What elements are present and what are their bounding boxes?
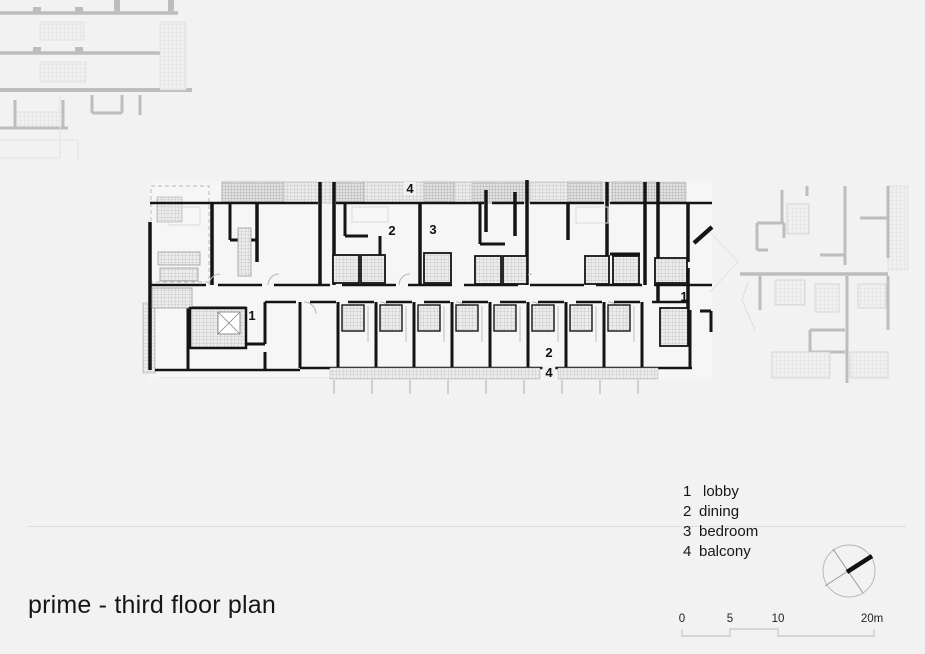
plan-room-label-dining-lower: 2 — [545, 346, 552, 359]
legend-label: balcony — [699, 542, 751, 562]
floor-plan-drawing — [0, 0, 925, 654]
legend-item-lobby: 1 lobby — [683, 482, 758, 502]
legend-item-dining: 2 dining — [683, 502, 758, 522]
room-legend: 1 lobby 2 dining 3 bedroom 4 balcony — [683, 482, 758, 562]
legend-label: lobby — [703, 482, 739, 502]
stair-core — [660, 308, 688, 346]
plan-room-label-bedroom-upper: 3 — [429, 223, 436, 236]
scale-tick-10: 10 — [772, 613, 785, 625]
plan-room-label-balcony-top: 4 — [403, 182, 416, 195]
north-arrow-needle — [847, 556, 872, 572]
main-floor-plan — [143, 180, 738, 394]
divider-line — [28, 526, 906, 527]
legend-number: 4 — [683, 542, 695, 562]
floor-plan-page: 4 2 3 1 1 2 4 1 lobby 2 dining 3 bedroom… — [0, 0, 925, 654]
scale-tick-5: 5 — [727, 613, 733, 625]
drawing-title: prime - third floor plan — [28, 591, 276, 620]
plan-room-label-dining-upper: 2 — [388, 224, 395, 237]
scale-tick-0: 0 — [679, 613, 685, 625]
balcony-band-bottom — [330, 368, 540, 379]
legend-label: bedroom — [699, 522, 758, 542]
plan-room-label-lobby-right: 1 — [680, 290, 687, 303]
legend-number: 2 — [683, 502, 695, 522]
legend-number: 3 — [683, 522, 695, 542]
legend-item-bedroom: 3 bedroom — [683, 522, 758, 542]
scale-bar — [682, 629, 874, 636]
scale-tick-20m: 20m — [861, 613, 883, 625]
plan-room-label-lobby-left: 1 — [248, 309, 255, 322]
north-arrow-compass — [823, 545, 875, 597]
legend-number: 1 — [683, 482, 695, 502]
plan-room-label-balcony-bottom: 4 — [542, 366, 555, 379]
adjacent-plan-right — [740, 186, 908, 383]
legend-item-balcony: 4 balcony — [683, 542, 758, 562]
adjacent-plan-top-left — [0, 0, 192, 160]
legend-label: dining — [699, 502, 739, 522]
